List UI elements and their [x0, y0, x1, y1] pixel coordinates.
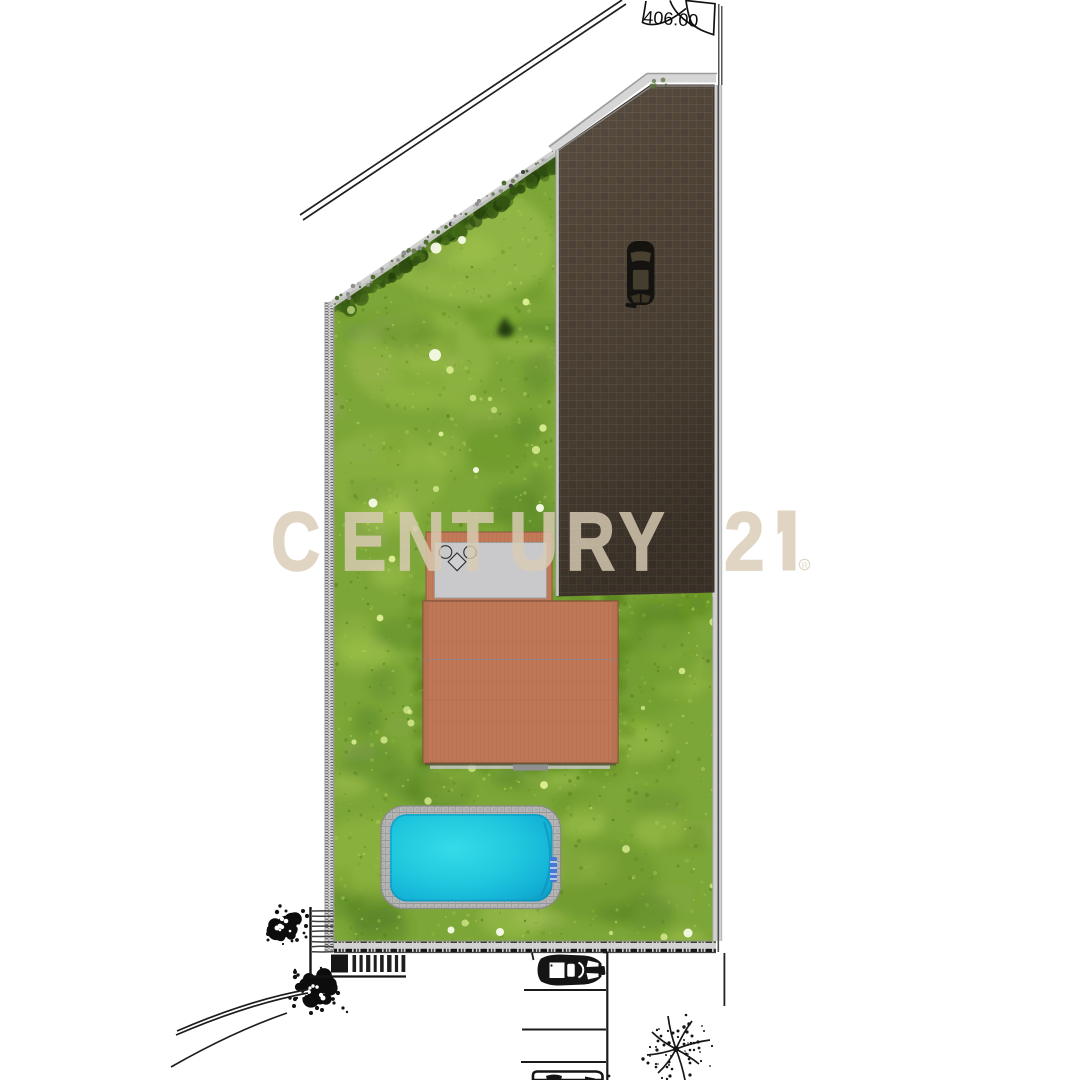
- svg-text:2: 2: [724, 495, 765, 588]
- svg-text:Y: Y: [619, 495, 664, 588]
- svg-text:E: E: [341, 495, 386, 588]
- svg-text:R: R: [566, 495, 615, 588]
- svg-text:C: C: [271, 495, 320, 588]
- svg-text:406.00: 406.00: [643, 7, 699, 31]
- svg-text:N: N: [396, 495, 445, 588]
- svg-text:U: U: [509, 495, 558, 588]
- svg-text:T: T: [452, 495, 494, 588]
- svg-text:R: R: [802, 561, 808, 570]
